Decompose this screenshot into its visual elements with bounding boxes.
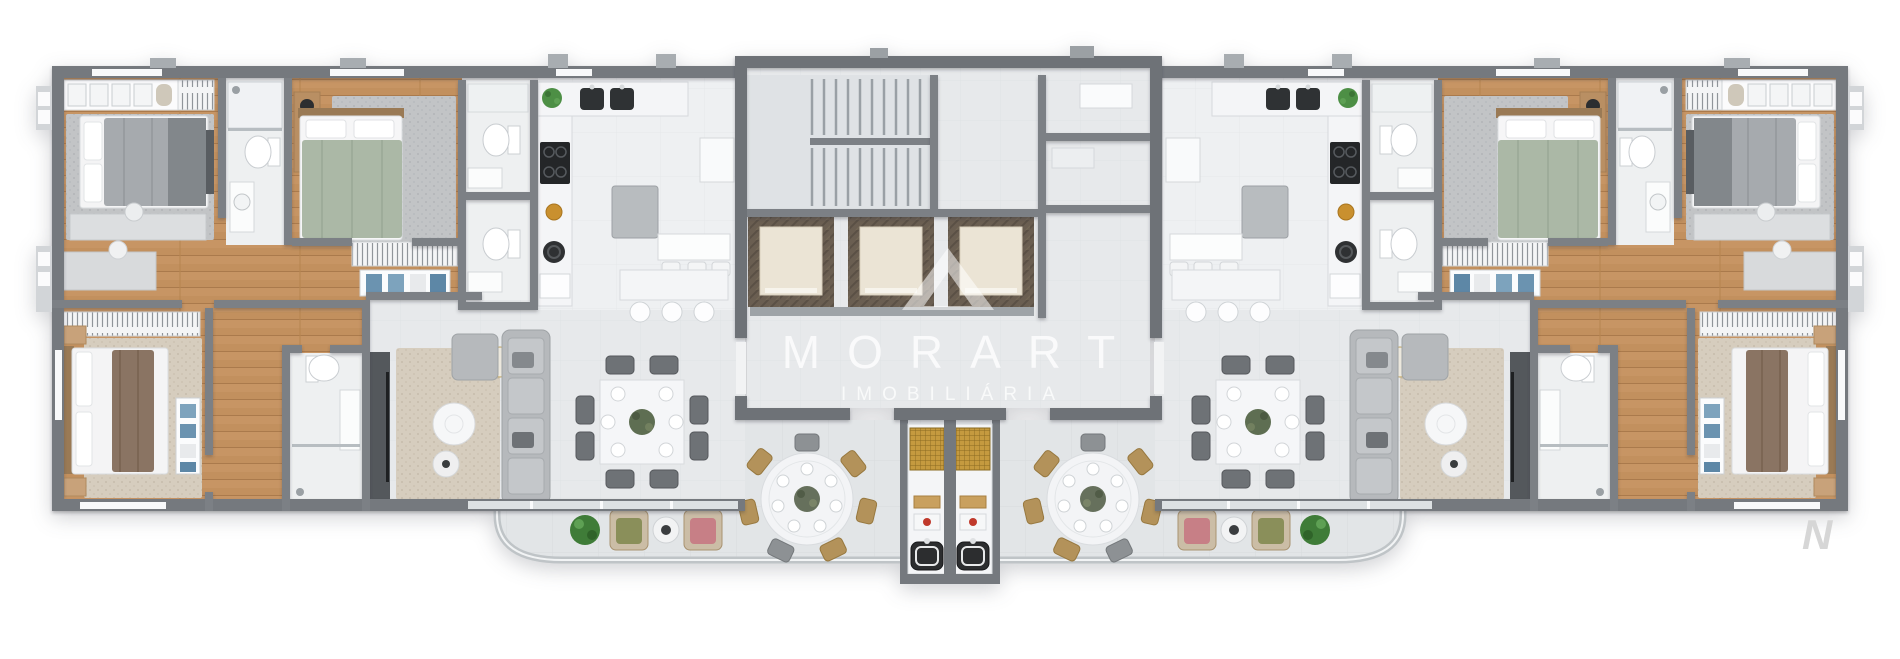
- toilet: [309, 355, 339, 381]
- pan-icon: [546, 204, 562, 220]
- vanity: [468, 168, 502, 188]
- nightstand: [64, 326, 86, 344]
- toilet: [245, 136, 271, 168]
- fridge: [612, 186, 658, 238]
- technical-room-fixture: [1052, 148, 1094, 168]
- dresser: [176, 398, 200, 474]
- vanity: [468, 272, 502, 292]
- closet-rail: [178, 80, 214, 110]
- floor-plan-render: MORART IMOBILIÁRIA N: [0, 0, 1900, 659]
- sink: [580, 88, 604, 110]
- elevator-door: [765, 288, 817, 293]
- cooktop: [540, 142, 570, 184]
- plant-icon: [570, 515, 600, 545]
- kitchen-island: [620, 270, 728, 300]
- elevator: [948, 215, 1034, 307]
- elevator-door: [865, 288, 917, 293]
- barbecue-station: [900, 420, 950, 584]
- technical-room-fixture: [1080, 84, 1132, 108]
- plant-icon: [542, 88, 562, 108]
- chair: [576, 396, 594, 424]
- vanity: [340, 390, 360, 450]
- grill: [910, 428, 944, 470]
- living-room: [370, 330, 708, 504]
- tv-icon: [386, 372, 389, 482]
- washer: [543, 241, 565, 263]
- door-opening: [736, 342, 746, 394]
- stool: [630, 302, 650, 322]
- bedroom-3: [62, 312, 202, 498]
- bench: [206, 130, 214, 194]
- exterior-stub: [870, 48, 888, 58]
- chair: [650, 470, 678, 488]
- floor-plan-page: MORART IMOBILIÁRIA N: [0, 0, 1900, 659]
- cutting-board: [914, 496, 940, 508]
- sofa: [502, 330, 550, 504]
- shower-glass: [292, 444, 360, 447]
- chaise: [452, 334, 498, 380]
- nightstand: [64, 478, 86, 496]
- chair: [650, 356, 678, 374]
- sink: [610, 88, 634, 110]
- master-bedroom: [64, 80, 214, 240]
- stool: [662, 302, 682, 322]
- toilet: [483, 228, 509, 260]
- shower-glass: [228, 128, 282, 131]
- mirror-icon: [156, 84, 172, 106]
- laundry-sink: [540, 274, 570, 298]
- watermark-title: MORART: [782, 326, 1143, 378]
- elevator: [748, 215, 834, 307]
- chair: [690, 432, 708, 460]
- double-bed-brown: [64, 346, 168, 474]
- chair: [125, 203, 143, 221]
- shower: [468, 84, 528, 112]
- elevators: [748, 215, 1034, 316]
- service-table: [658, 234, 730, 260]
- divider-wall: [944, 420, 950, 584]
- toilet: [483, 124, 509, 156]
- door-opening: [1154, 342, 1164, 394]
- stool: [694, 302, 714, 322]
- console-desk: [60, 252, 156, 290]
- basin: [234, 194, 250, 210]
- staircase: [747, 75, 930, 209]
- watermark-subtitle: IMOBILIÁRIA: [841, 384, 1065, 405]
- building: [36, 46, 1864, 584]
- chair: [606, 356, 634, 374]
- chair: [606, 470, 634, 488]
- exterior-stub: [1070, 46, 1094, 58]
- double-bed-sage: [298, 108, 404, 240]
- shower-head-icon: [296, 488, 304, 496]
- chair: [576, 432, 594, 460]
- chair: [109, 241, 127, 259]
- chair: [690, 396, 708, 424]
- corner-brand-icon: N: [1802, 511, 1834, 558]
- cabinet: [700, 138, 734, 182]
- coffee-table: [433, 403, 475, 445]
- double-bed: [80, 116, 208, 208]
- shower-head-icon: [232, 86, 240, 94]
